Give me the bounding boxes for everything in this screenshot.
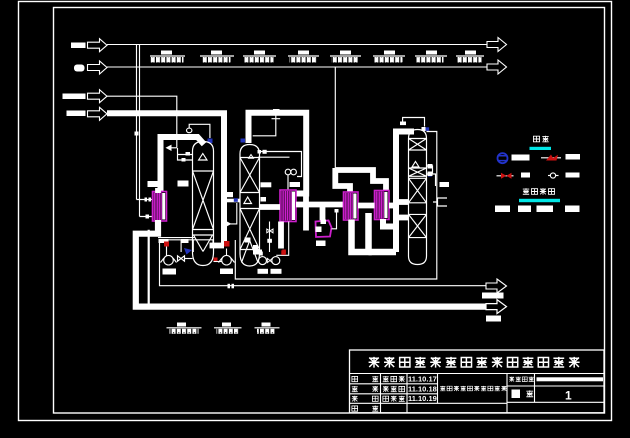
- svg-text:1: 1: [565, 389, 572, 403]
- svg-text:11.10.19: 11.10.19: [408, 394, 437, 403]
- svg-text:11.10.18: 11.10.18: [408, 385, 437, 394]
- svg-text:11.10.17: 11.10.17: [408, 375, 437, 384]
